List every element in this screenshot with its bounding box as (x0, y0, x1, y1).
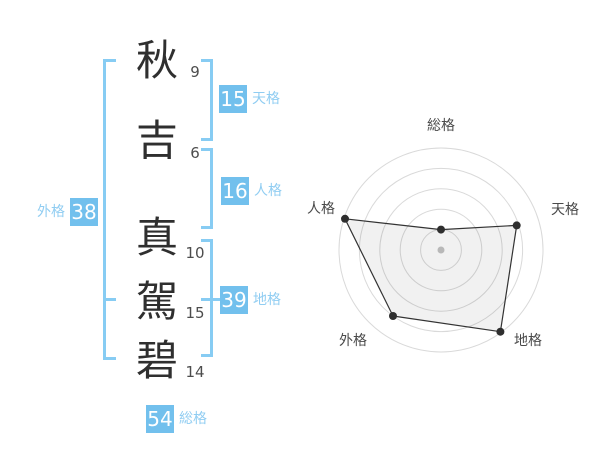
radar-data-point (389, 312, 397, 320)
radar-data-point (437, 226, 445, 234)
fortune-radar-chart: 総格天格地格外格人格 (301, 110, 581, 390)
jinkaku-bracket (201, 148, 213, 229)
radar-data-point (513, 221, 521, 229)
chikaku-badge: 39 (220, 286, 248, 314)
chikaku-label: 地格 (253, 286, 281, 314)
radar-axis-label: 地格 (514, 333, 542, 349)
jinkaku-badge: 16 (221, 177, 249, 205)
tenkaku-badge: 15 (219, 85, 247, 113)
name-char-1: 秋 (133, 40, 181, 82)
gaikaku-bracket-tick (103, 298, 116, 301)
tenkaku-label: 天格 (252, 85, 280, 113)
tenkaku-bracket (201, 59, 213, 141)
name-char-3: 真 (133, 217, 181, 259)
radar-axis-label: 外格 (339, 333, 367, 349)
name-char-5: 碧 (133, 340, 181, 382)
gaikaku-bracket (103, 59, 116, 360)
radar-data-point (496, 328, 504, 336)
radar-axis-label: 総格 (427, 118, 455, 134)
name-char-2: 吉 (133, 120, 181, 162)
radar-polygon (345, 219, 517, 332)
radar-axis-label: 天格 (551, 202, 579, 218)
jinkaku-label: 人格 (254, 177, 282, 205)
name-char-4: 駕 (133, 281, 181, 323)
soukaku-badge: 54 (146, 405, 174, 433)
chikaku-bracket-tick (201, 298, 220, 301)
radar-center-dot (438, 247, 445, 254)
stroke-count-5: 14 (182, 365, 208, 380)
radar-axis-label: 人格 (307, 201, 335, 217)
radar-data-point (341, 215, 349, 223)
soukaku-label: 総格 (179, 405, 207, 433)
name-fortune-panel: 秋 吉 真 駕 碧 9 6 10 15 14 15 天格 16 人格 39 地格… (0, 0, 600, 470)
gaikaku-badge: 38 (70, 198, 98, 226)
gaikaku-label: 外格 (37, 198, 65, 226)
